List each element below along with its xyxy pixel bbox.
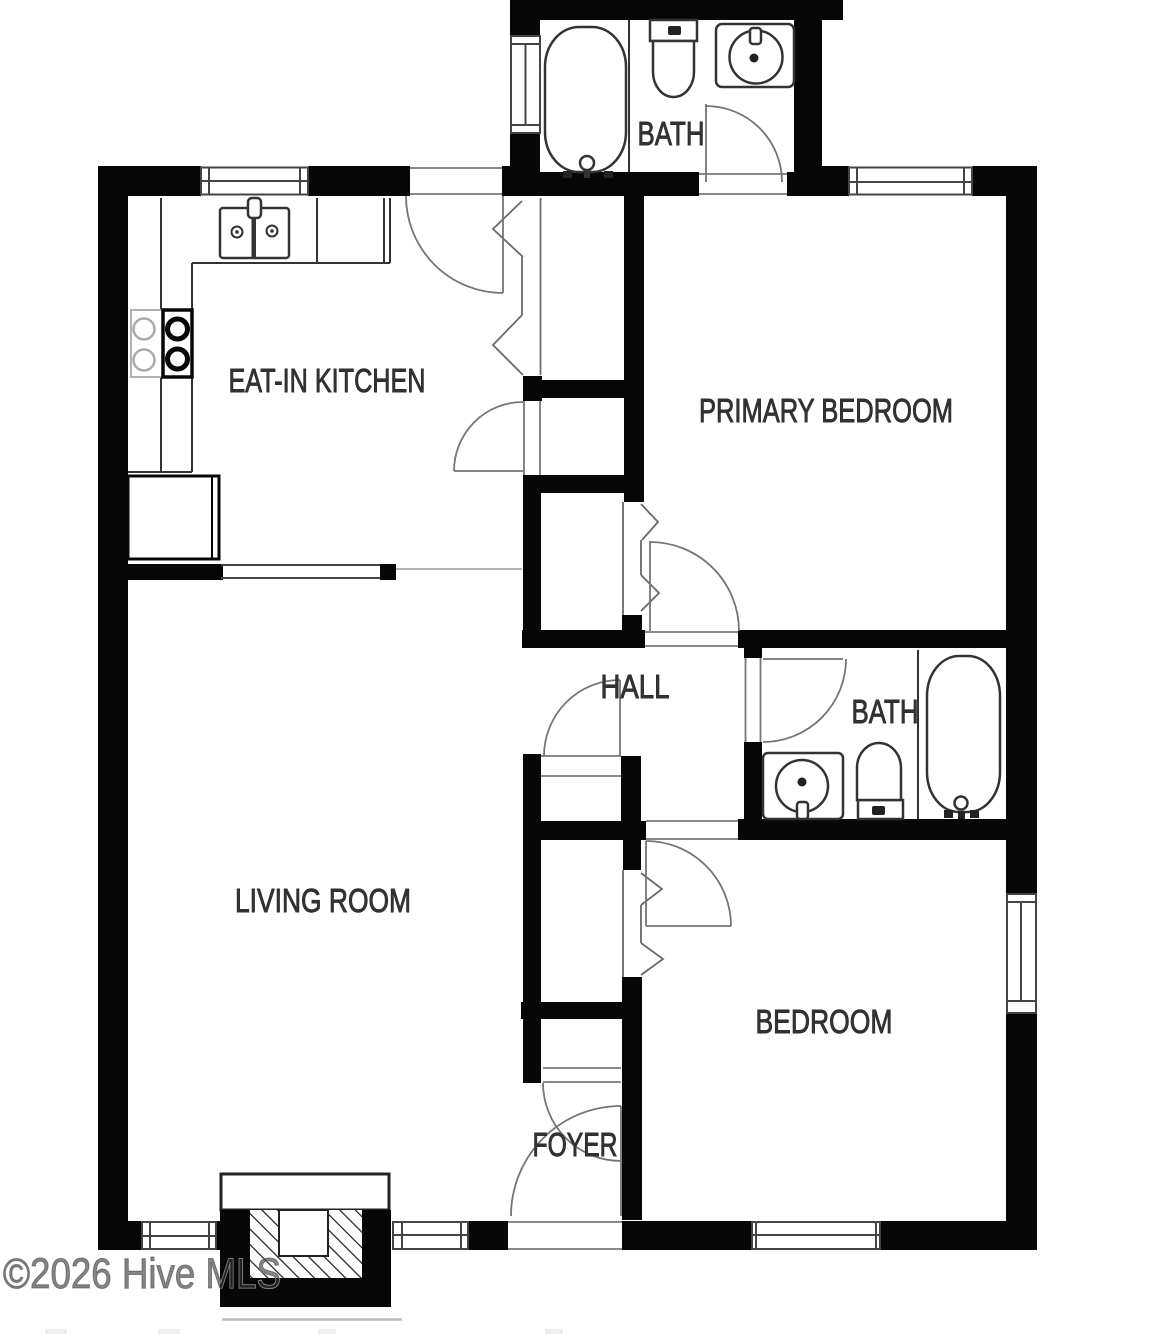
svg-text:BEDROOM: BEDROOM xyxy=(756,1003,893,1040)
svg-text:BATH: BATH xyxy=(638,115,705,152)
svg-text:©2026 Hive MLS: ©2026 Hive MLS xyxy=(3,1251,281,1298)
svg-text:EAT-IN KITCHEN: EAT-IN KITCHEN xyxy=(229,362,426,399)
svg-text:BATH: BATH xyxy=(852,693,919,730)
svg-text:PRIMARY BEDROOM: PRIMARY BEDROOM xyxy=(699,392,953,429)
svg-text:FOYER: FOYER xyxy=(533,1126,618,1163)
svg-text:HALL: HALL xyxy=(601,668,670,705)
svg-text:LIVING ROOM: LIVING ROOM xyxy=(235,882,411,919)
